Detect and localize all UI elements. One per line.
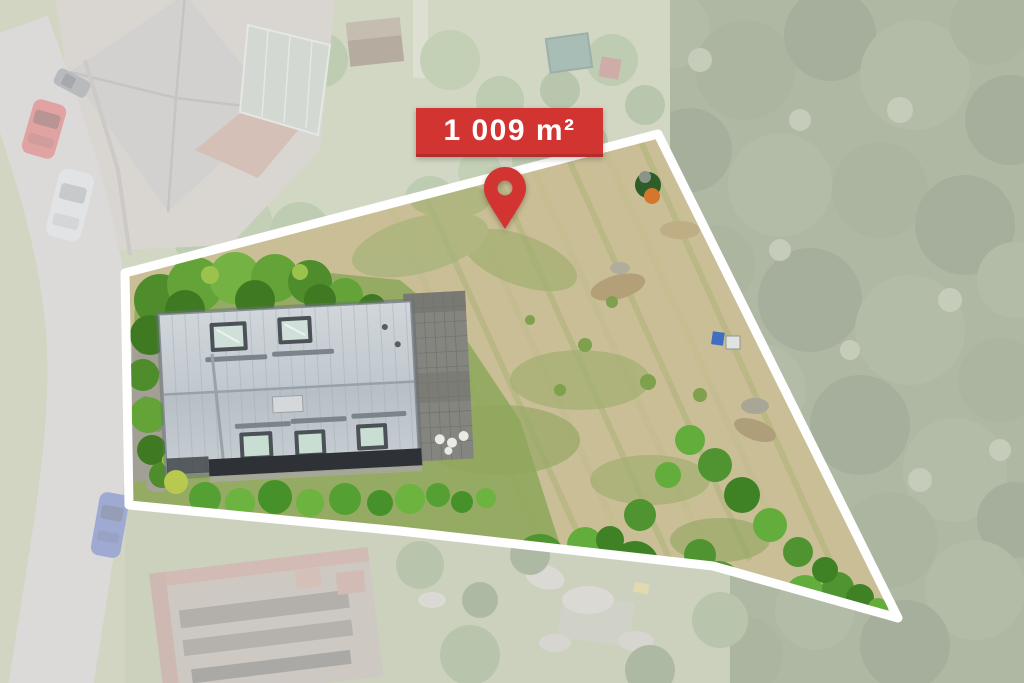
skylight (277, 316, 312, 345)
roof-unit (272, 395, 303, 413)
map-pin-icon (481, 165, 529, 231)
skylight (209, 321, 247, 352)
roof-upper-slope (159, 302, 415, 395)
aerial-photo (0, 0, 1024, 683)
blue-box (711, 331, 725, 346)
house (155, 291, 474, 485)
white-box (726, 336, 740, 349)
area-label: 1 009 m² (416, 108, 603, 157)
skylight (356, 423, 388, 451)
orange-object (644, 188, 660, 204)
